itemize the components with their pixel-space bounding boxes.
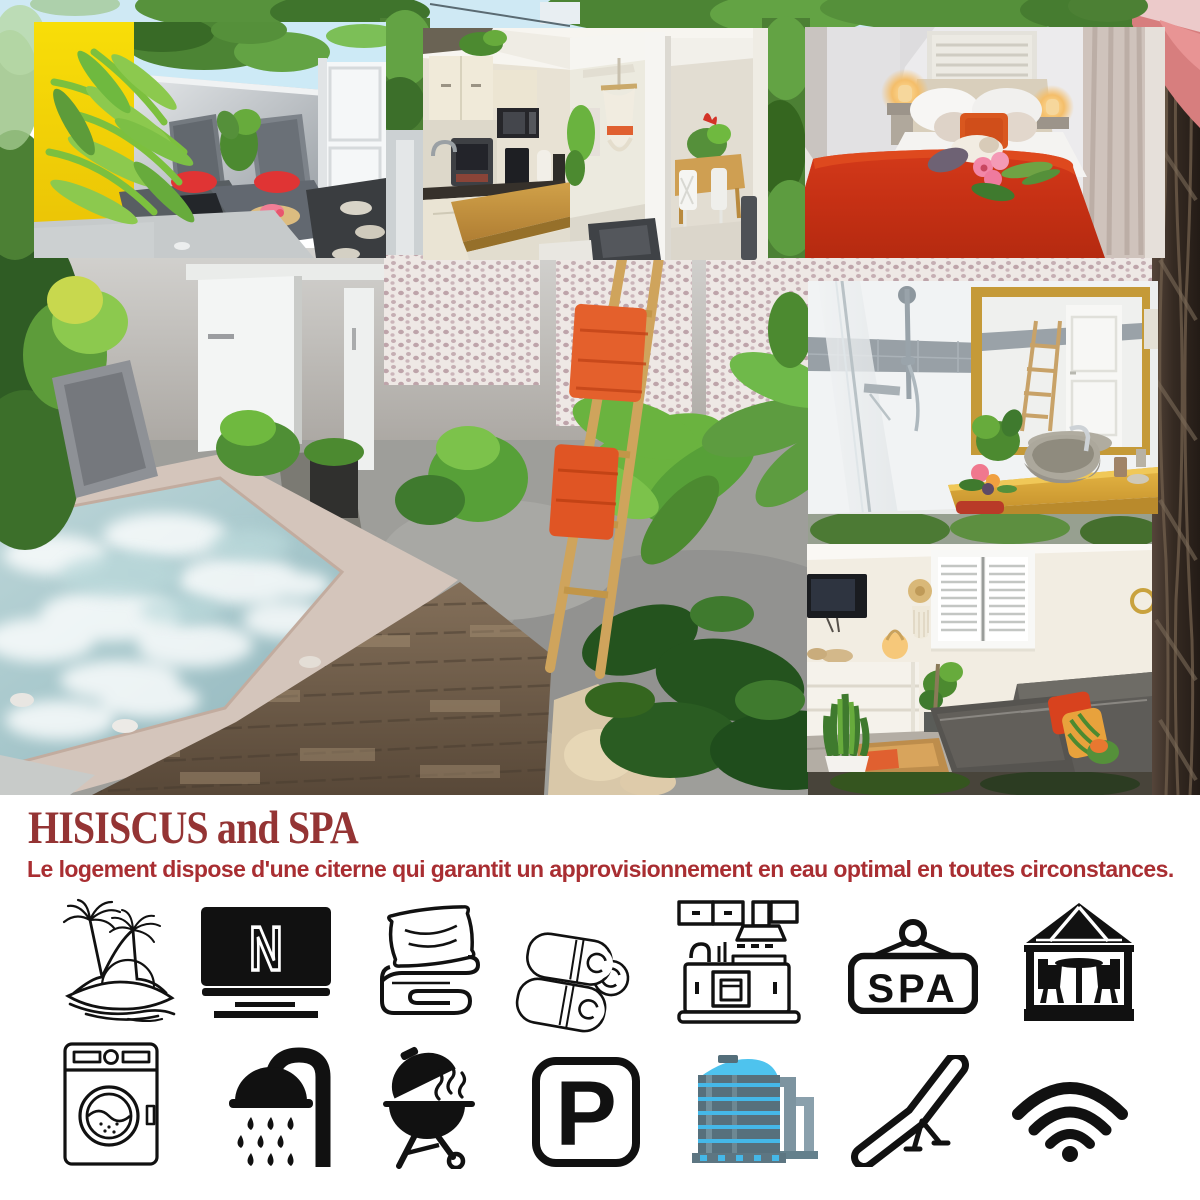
svg-text:P: P bbox=[555, 1063, 616, 1165]
svg-text:SPA: SPA bbox=[867, 967, 958, 1011]
svg-text:N: N bbox=[249, 914, 282, 983]
